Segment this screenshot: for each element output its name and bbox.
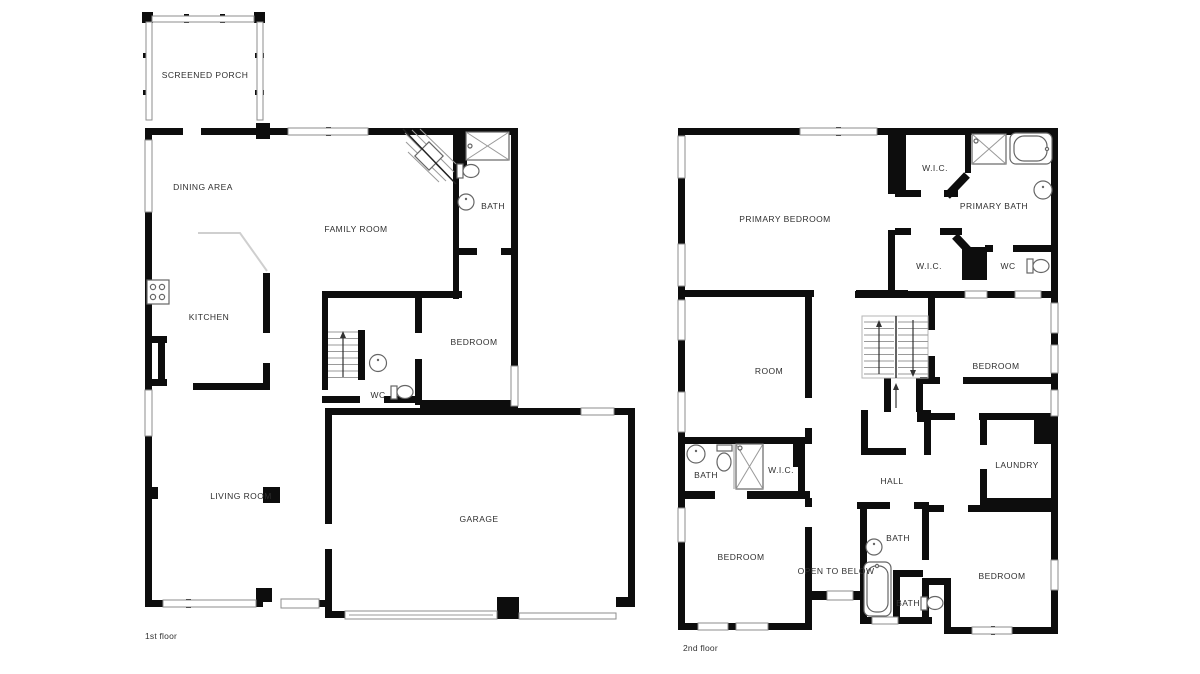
shower-icon xyxy=(466,132,509,160)
room-label-open-to-below: OPEN TO BELOW xyxy=(798,566,875,576)
room-label-bath-lower: BATH xyxy=(896,598,920,608)
room-label-bedroom-midright: BEDROOM xyxy=(972,361,1019,371)
room-label-bath-center: BATH xyxy=(886,533,910,543)
room-label-living-room: LIVING ROOM xyxy=(210,491,272,501)
toilet-icon xyxy=(457,164,479,178)
room-label-wc-2: WC xyxy=(1000,261,1015,271)
room-label-primary-bath: PRIMARY BATH xyxy=(960,201,1028,211)
room-label-dining-area: DINING AREA xyxy=(173,182,233,192)
room-label-wic-mid: W.I.C. xyxy=(916,261,942,271)
sink-icon xyxy=(866,539,882,555)
sink-icon xyxy=(1034,181,1052,199)
sink-icon xyxy=(687,445,705,463)
bathtub-icon xyxy=(1010,133,1052,164)
room-label-bath-left: BATH xyxy=(694,470,718,480)
room-label-family-room: FAMILY ROOM xyxy=(324,224,387,234)
room-label-hall: HALL xyxy=(880,476,903,486)
room-label-bedroom-bottomleft: BEDROOM xyxy=(717,552,764,562)
toilet-icon xyxy=(717,445,732,471)
kitchen-counter xyxy=(198,233,267,271)
staircase xyxy=(328,331,358,378)
room-label-wic-lower: W.I.C. xyxy=(768,465,794,475)
floor-plan-page: SCREENED PORCH DINING AREA FAMILY ROOM B… xyxy=(0,0,1200,674)
room-label-wic-top: W.I.C. xyxy=(922,163,948,173)
shower-icon xyxy=(972,134,1006,164)
room-label-kitchen: KITCHEN xyxy=(189,312,229,322)
floor-caption-1: 1st floor xyxy=(145,631,177,641)
room-label-bath-1: BATH xyxy=(481,201,505,211)
sink-icon xyxy=(458,194,474,210)
room-label-bedroom-bottomright: BEDROOM xyxy=(978,571,1025,581)
room-label-laundry: LAUNDRY xyxy=(995,460,1039,470)
toilet-icon xyxy=(391,386,413,400)
room-label-bedroom-1: BEDROOM xyxy=(450,337,497,347)
stove-icon xyxy=(147,280,169,304)
room-label-screened-porch: SCREENED PORCH xyxy=(162,70,249,80)
room-label-garage: GARAGE xyxy=(459,514,498,524)
room-label-wc-1: WC xyxy=(370,390,385,400)
winder-stairs xyxy=(403,129,456,184)
toilet-icon xyxy=(921,597,943,611)
toilet-icon xyxy=(1027,259,1049,273)
shower-icon xyxy=(734,444,763,489)
first-floor-plan: SCREENED PORCH DINING AREA FAMILY ROOM B… xyxy=(142,12,635,641)
room-label-primary-bedroom: PRIMARY BEDROOM xyxy=(739,214,830,224)
sink-icon xyxy=(370,355,387,372)
second-floor-plan: W.I.C. PRIMARY BATH PRIMARY BEDROOM W.I.… xyxy=(678,127,1058,653)
room-label-room: ROOM xyxy=(755,366,783,376)
floor-caption-2: 2nd floor xyxy=(683,643,718,653)
floor-plan-canvas: SCREENED PORCH DINING AREA FAMILY ROOM B… xyxy=(0,0,1200,674)
